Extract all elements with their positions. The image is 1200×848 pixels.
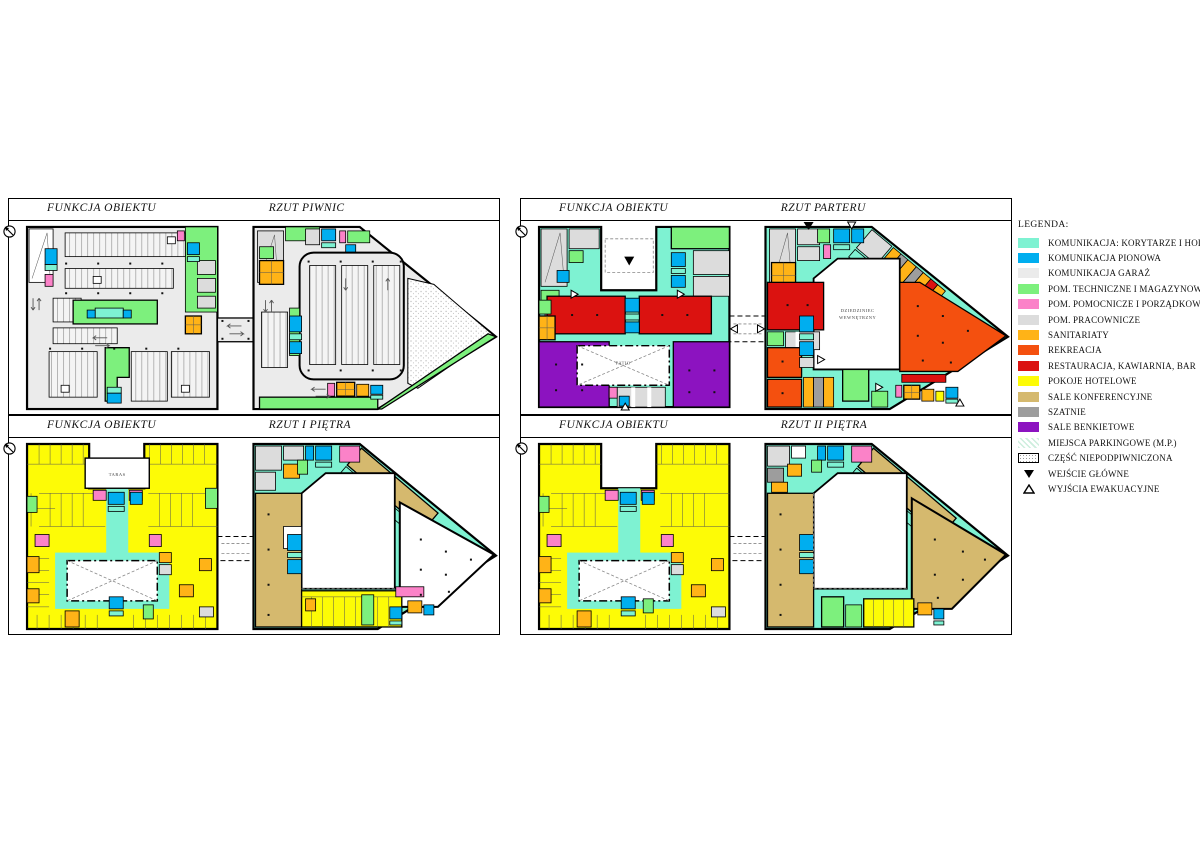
evacuation-exit-icon [1018, 484, 1039, 494]
restaurant-area [547, 296, 625, 334]
p1-left-building: TARAS [27, 444, 217, 629]
hotel-rooms-swatch [1018, 376, 1039, 386]
legend-title: LEGENDA: [1018, 220, 1198, 230]
panel-title: RZUT I PIĘTRA [269, 419, 351, 431]
banquet-hall [673, 342, 729, 407]
evacuation-exit-icon [730, 325, 737, 333]
patio [67, 561, 157, 601]
inner-courtyard [814, 473, 907, 589]
panel-header: FUNKCJA OBIEKTU RZUT I PIĘTRA [9, 416, 499, 438]
courtyard-label: DZIEDZINIEC [841, 308, 875, 313]
technical-storage-swatch [1018, 284, 1039, 294]
inner-courtyard [302, 473, 395, 589]
panel-rzut-piwnic: FUNKCJA OBIEKTU RZUT PIWNIC [8, 198, 500, 415]
legend-item: MIEJSCA PARKINGOWE (M.P.) [1018, 435, 1198, 450]
legend-item: SALE BENKIETOWE [1018, 420, 1198, 435]
legend-item: REKREACJA [1018, 343, 1198, 358]
unexcavated-swatch [1018, 453, 1039, 463]
auxiliary-rooms-swatch [1018, 299, 1039, 309]
panel-title: RZUT PARTERU [781, 202, 866, 214]
panel-title: RZUT PIWNIC [269, 202, 345, 214]
hotel-rooms [864, 599, 914, 627]
legend-item: KOMUNIKACJA GARAŻ [1018, 266, 1198, 281]
floor-plan-parter: PATIO [521, 221, 1011, 412]
legend: LEGENDA: KOMUNIKACJA: KORYTARZE I HOL KO… [1018, 220, 1198, 497]
legend-item: KOMUNIKACJA PIONOWA [1018, 250, 1198, 265]
floor-plan-1-pietro: TARAS [9, 438, 499, 632]
legend-item: CZĘŚĆ NIEPODPIWNICZONA [1018, 450, 1198, 465]
terrace-label: TARAS [109, 472, 126, 477]
piwnic-left-building [27, 227, 217, 409]
legend-item: POM. PRACOWNICZE [1018, 312, 1198, 327]
p1-connecting-corridor [217, 537, 253, 561]
recreation-swatch [1018, 345, 1039, 355]
panel-rzut-parteru: FUNKCJA OBIEKTU RZUT PARTERU P [520, 198, 1012, 415]
conference-swatch [1018, 392, 1039, 402]
main-entrance-icon [624, 257, 634, 266]
cloakroom-swatch [1018, 407, 1039, 417]
p1-right-building [253, 444, 495, 629]
legend-item: POM. POMOCNICZE I PORZĄDKOWE [1018, 297, 1198, 312]
panel-rzut-2-pietra: FUNKCJA OBIEKTU RZUT II PIĘTRA [520, 415, 1012, 635]
panel-title: RZUT II PIĘTRA [781, 419, 868, 431]
vertical-communication-swatch [1018, 253, 1039, 263]
legend-item: SALE KONFERENCYJNE [1018, 389, 1198, 404]
panel-rzut-1-pietra: FUNKCJA OBIEKTU RZUT I PIĘTRA TARAS [8, 415, 500, 635]
legend-item: KOMUNIKACJA: KORYTARZE I HOL [1018, 235, 1198, 250]
parter-connecting-corridor [729, 316, 765, 342]
piwnic-connecting-corridor [217, 318, 253, 342]
function-label: FUNKCJA OBIEKTU [559, 419, 668, 431]
panel-header: FUNKCJA OBIEKTU RZUT II PIĘTRA [521, 416, 1011, 438]
restaurant-area [639, 296, 711, 334]
courtyard-label: WEWNĘTRZNY [839, 315, 877, 320]
panel-header: FUNKCJA OBIEKTU RZUT PIWNIC [9, 199, 499, 221]
garage-communication-swatch [1018, 268, 1039, 278]
legend-item: POM. TECHNICZNE I MAGAZYNOWE [1018, 281, 1198, 296]
parter-left-building: PATIO [539, 227, 729, 410]
legend-item: WEJŚCIE GŁÓWNE [1018, 466, 1198, 481]
corridors-hall-swatch [1018, 238, 1039, 248]
restaurant-swatch [1018, 361, 1039, 371]
floor-plan-piwnic [9, 221, 499, 412]
p2-right-building [765, 444, 1007, 629]
legend-item: WYJŚCIA EWAKUACYJNE [1018, 481, 1198, 496]
panel-header: FUNKCJA OBIEKTU RZUT PARTERU [521, 199, 1011, 221]
restaurant-area [768, 282, 824, 330]
sanitary-swatch [1018, 330, 1039, 340]
patio [579, 561, 669, 601]
banquet-swatch [1018, 422, 1039, 432]
parking-spaces-swatch [1018, 438, 1039, 448]
legend-item: RESTAURACJA, KAWIARNIA, BAR [1018, 358, 1198, 373]
legend-item: SANITARIATY [1018, 327, 1198, 342]
p2-left-building [539, 444, 729, 629]
hotel-rooms [302, 591, 402, 627]
drawing-sheet: { "colors":{ "aqua":"#7EF2D2","blue":"#0… [0, 0, 1200, 848]
evacuation-exit-icon [757, 325, 764, 333]
parter-right-building: DZIEDZINIEC WEWNĘTRZNY [765, 222, 1007, 409]
legend-item: SZATNIE [1018, 404, 1198, 419]
legend-item: POKOJE HOTELOWE [1018, 374, 1198, 389]
floor-plan-2-pietro [521, 438, 1011, 632]
patio-label: PATIO [616, 361, 631, 366]
piwnic-right-building [253, 227, 495, 409]
entrance-canopy [605, 239, 653, 273]
main-entrance-icon [1018, 469, 1039, 479]
function-label: FUNKCJA OBIEKTU [559, 202, 668, 214]
function-label: FUNKCJA OBIEKTU [47, 419, 156, 431]
p2-connecting-corridor [729, 537, 765, 561]
unexcavated-area [408, 278, 494, 388]
function-label: FUNKCJA OBIEKTU [47, 202, 156, 214]
staff-rooms-swatch [1018, 315, 1039, 325]
